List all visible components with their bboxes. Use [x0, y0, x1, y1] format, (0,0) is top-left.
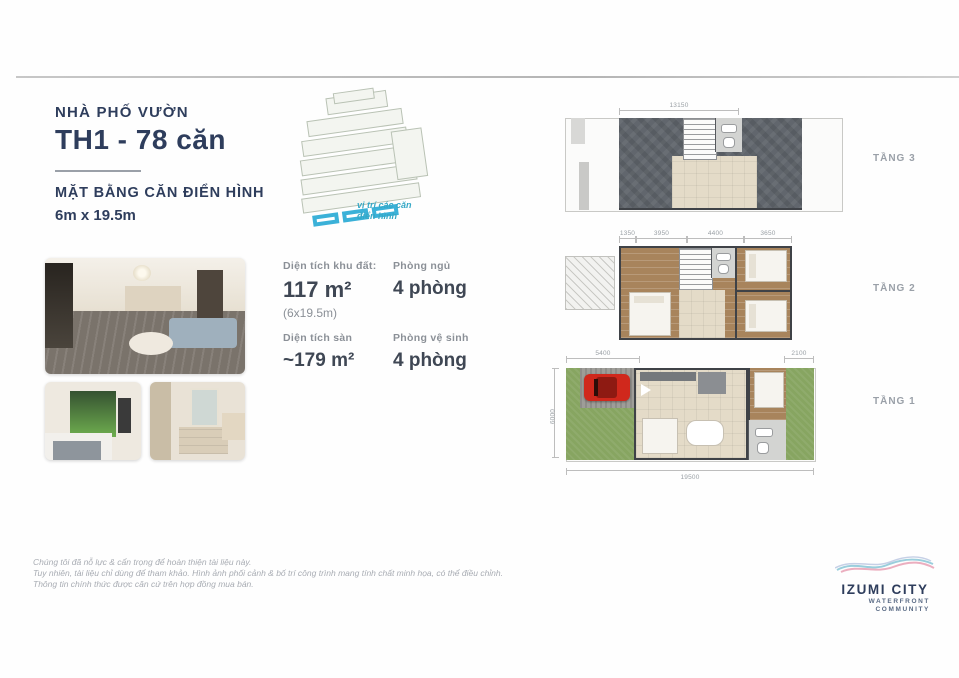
dim-line: 19500: [566, 470, 814, 471]
spec-bedrooms: Phòng ngủ 4 phòng: [393, 260, 493, 300]
photo-shelf: [197, 270, 223, 319]
bed: [754, 372, 784, 408]
photo-drawers: [179, 427, 228, 454]
bed: [745, 300, 787, 332]
project-type: NHÀ PHỐ VƯỜN: [55, 104, 264, 121]
dim-line: 3950: [636, 238, 687, 239]
sink-fixture: [721, 124, 737, 133]
bedrooms-label: Phòng ngủ: [393, 260, 493, 272]
bedrooms-value: 4 phòng: [393, 278, 493, 300]
floorplan-level2: 1350 3950 4400 3650: [557, 232, 849, 352]
page-title: TH1 - 78 căn: [55, 124, 264, 156]
photo-mirror: [190, 388, 219, 426]
disclaimer-line1: Chúng tôi đã nỗ lực & cẩn trọng để hoàn …: [33, 557, 633, 568]
photo-living-room: [45, 258, 245, 374]
pillow: [749, 304, 756, 328]
landing-hall: [679, 290, 725, 338]
dim-label: 2100: [784, 350, 814, 357]
toilet-fixture: [723, 137, 735, 148]
photo-wardrobe: [150, 382, 171, 460]
pillow: [634, 296, 664, 303]
floorplan-level1: 5400 2100 19500 6000: [548, 352, 858, 482]
dim-label: 6000: [550, 403, 557, 431]
logo-name: IZUMI CITY: [826, 582, 944, 597]
dim-line: 3650: [744, 238, 792, 239]
toilet-fixture: [718, 264, 729, 274]
kitchen-counter: [640, 372, 696, 381]
level3-room: [672, 156, 757, 210]
dim-line: 5400: [566, 358, 640, 359]
photo-bedroom: [45, 382, 141, 460]
dim-line: 13150: [619, 110, 739, 111]
dim-label: 4400: [687, 230, 744, 237]
brochure-page: NHÀ PHỐ VƯỜN TH1 - 78 căn MẶT BẰNG CĂN Đ…: [0, 0, 959, 678]
photo-stairs: [45, 263, 73, 349]
disclaimer: Chúng tôi đã nỗ lực & cẩn trọng để hoàn …: [33, 557, 633, 590]
photo-kitchen: [125, 286, 181, 312]
dim-line: 1350: [619, 238, 636, 239]
front-yard: [580, 408, 634, 460]
wall: [619, 208, 802, 210]
dim-label: 19500: [566, 474, 814, 481]
level3-label: TẦNG 3: [873, 153, 916, 164]
dim-label: 1350: [619, 230, 636, 237]
logo-tagline: WATERFRONT COMMUNITY: [826, 598, 944, 614]
photo-sofa: [169, 318, 237, 348]
toilet-fixture: [757, 442, 769, 454]
bathroom: [715, 118, 742, 152]
floor-area-label: Diện tích sàn: [283, 332, 388, 344]
sink-fixture: [716, 253, 731, 261]
wall: [735, 290, 792, 292]
dim-label: 3650: [744, 230, 792, 237]
spec-bathrooms: Phòng vệ sinh 4 phòng: [393, 332, 493, 372]
sink-fixture: [755, 428, 773, 437]
logo-wave-icon: [835, 556, 935, 576]
spec-floor-area: Diện tích sàn ~179 m²: [283, 332, 388, 372]
lot-size: 6m x 19.5m: [55, 207, 264, 224]
title-divider: [55, 170, 141, 172]
dim-line: 2100: [784, 358, 814, 359]
pillow: [749, 254, 756, 278]
front-lawn-strip: [566, 368, 580, 460]
void-skylight: [565, 256, 615, 310]
sitemap-caption-line2: điển hình: [357, 211, 412, 222]
bed: [629, 292, 671, 336]
stairs: [679, 248, 713, 292]
bathroom: [748, 420, 787, 460]
level1-label: TẦNG 1: [873, 396, 916, 407]
dim-line-vertical: 6000: [554, 368, 555, 458]
car: [584, 374, 630, 401]
logo-tagline-line1: WATERFRONT: [826, 598, 930, 606]
land-area-note: (6x19.5m): [283, 306, 388, 320]
entry-arrow-icon: [641, 384, 651, 396]
logo-tagline-line2: COMMUNITY: [826, 606, 930, 614]
bed: [745, 250, 787, 282]
sitemap-caption: vị trí các căn điển hình: [357, 200, 412, 222]
photo-window-seat: [222, 413, 245, 440]
sitemap-caption-line1: vị trí các căn: [357, 200, 412, 211]
dining-table: [686, 420, 724, 446]
level2-label: TẦNG 2: [873, 283, 916, 294]
title-block: NHÀ PHỐ VƯỜN TH1 - 78 căn MẶT BẰNG CĂN Đ…: [55, 104, 264, 224]
dim-label: 13150: [619, 102, 739, 109]
dim-label: 3950: [636, 230, 687, 237]
disclaimer-line3: Thông tin chính thức được căn cứ trên hợ…: [33, 579, 633, 590]
subtitle: MẶT BẰNG CĂN ĐIỂN HÌNH: [55, 185, 264, 201]
brand-logo: IZUMI CITY WATERFRONT COMMUNITY: [826, 556, 944, 614]
floorplan-level3: 13150: [557, 100, 849, 228]
page-top-edge: [16, 76, 959, 78]
bathrooms-label: Phòng vệ sinh: [393, 332, 493, 344]
annex-block: [571, 118, 585, 144]
wall: [735, 246, 737, 340]
bathrooms-value: 4 phòng: [393, 350, 493, 372]
photo-tv: [118, 398, 131, 434]
car-windshield: [594, 379, 598, 396]
bathroom: [711, 248, 736, 278]
spec-land-area: Diện tích khu đất: 117 m² (6x19.5m): [283, 260, 388, 320]
stairs-under: [698, 372, 726, 394]
stairs: [683, 118, 717, 160]
land-area-value: 117 m²: [283, 277, 388, 303]
dim-line: 4400: [687, 238, 744, 239]
land-area-label: Diện tích khu đất:: [283, 260, 388, 272]
sofa: [642, 418, 678, 454]
floor-area-value: ~179 m²: [283, 350, 388, 372]
photo-window-green: [70, 391, 116, 436]
photo-dresser: [150, 382, 245, 460]
back-garden: [786, 368, 814, 460]
car-roof: [596, 377, 617, 398]
dim-label: 5400: [566, 350, 640, 357]
photo-chandelier: [133, 265, 151, 281]
photo-blanket: [53, 441, 101, 460]
disclaimer-line2: Tuy nhiên, tài liệu chỉ dùng để tham khả…: [33, 568, 633, 579]
annex-column: [579, 162, 589, 210]
